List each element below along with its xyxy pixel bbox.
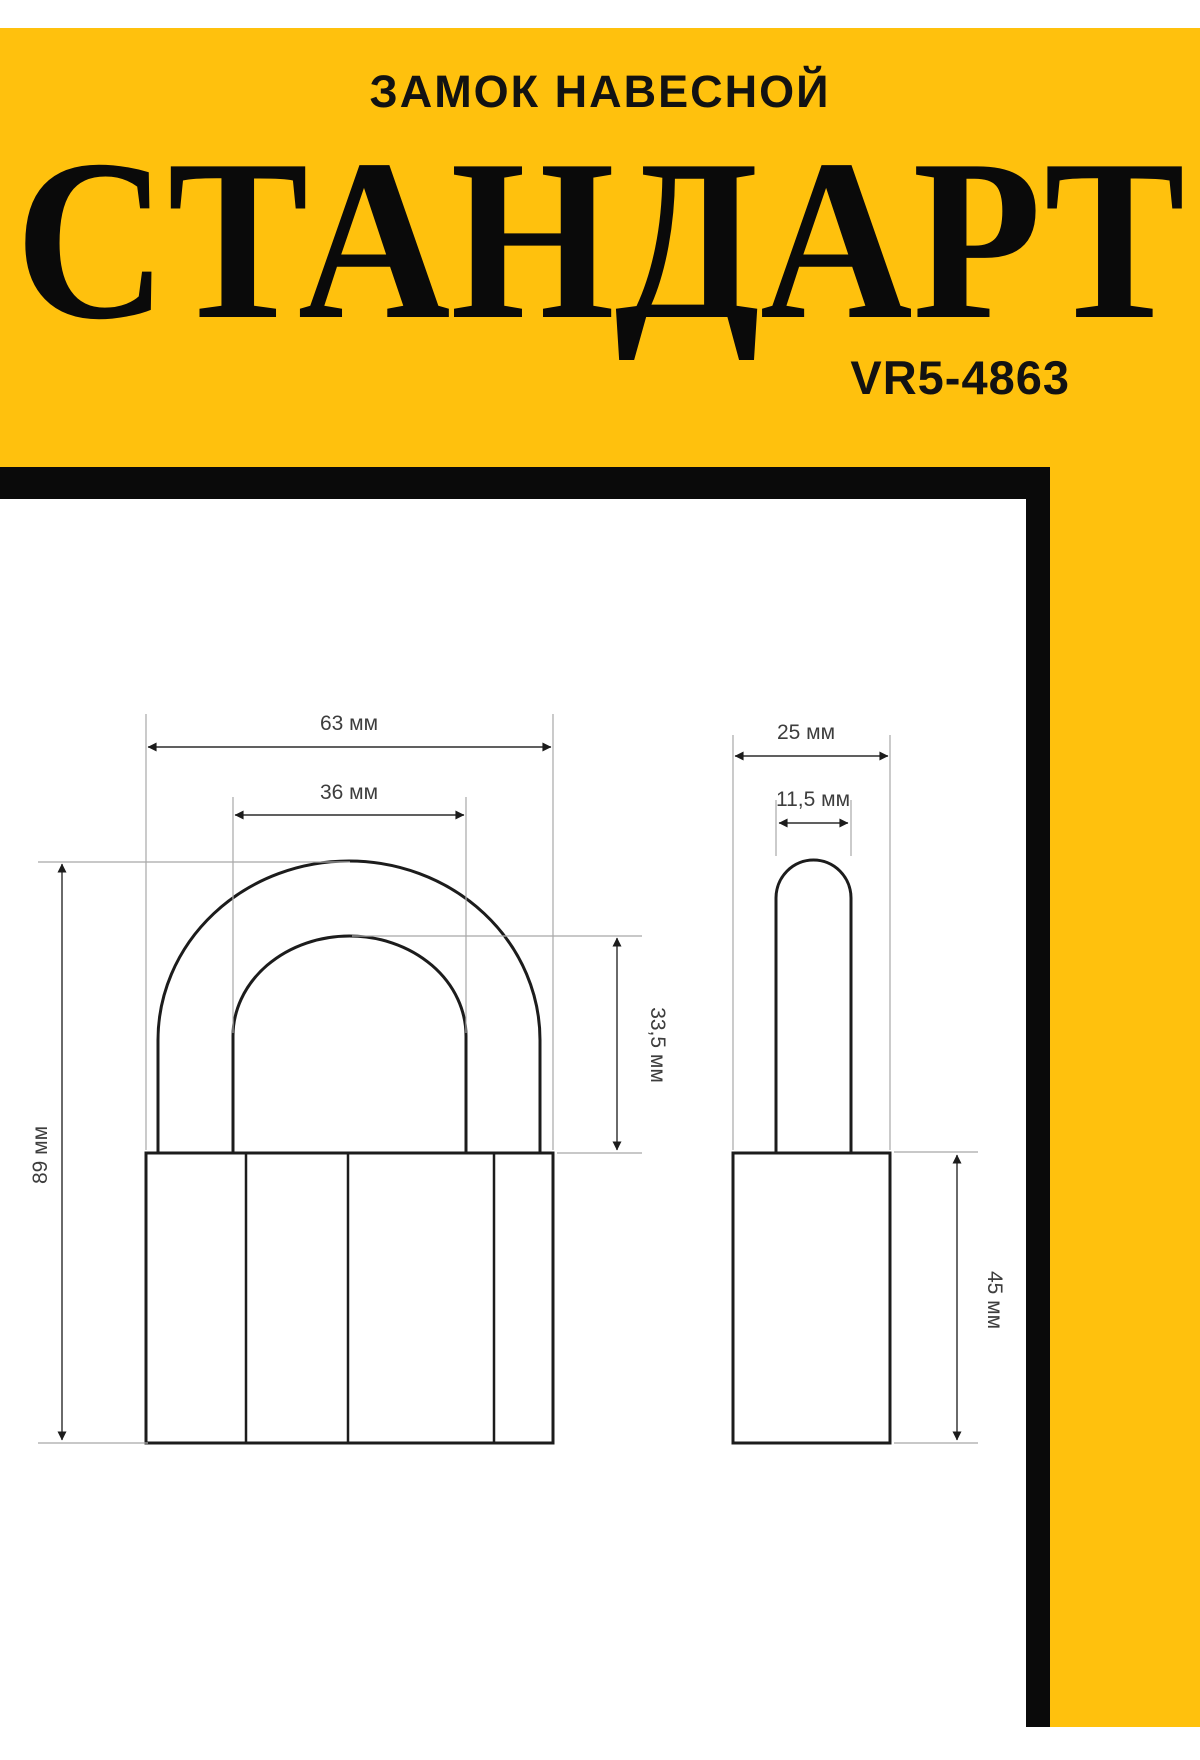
dim-label-front-opening-height: 33,5 мм <box>646 1007 669 1083</box>
side-body <box>733 1153 890 1443</box>
dimension-lines <box>62 747 957 1440</box>
dim-label-side-body-depth: 25 мм <box>777 721 835 744</box>
dim-label-front-overall-height: 89 мм <box>29 1126 52 1184</box>
dim-label-side-body-height: 45 мм <box>983 1271 1006 1329</box>
padlock-side-view <box>733 860 890 1443</box>
technical-drawing: 63 мм 36 мм 89 мм 33,5 мм 25 мм 11,5 мм … <box>0 0 1200 1760</box>
padlock-front-view <box>146 861 553 1443</box>
front-body <box>146 1153 553 1443</box>
front-shackle-inner <box>233 936 466 1153</box>
dim-label-front-inner-width: 36 мм <box>320 781 378 804</box>
dim-label-side-shackle-thickness: 11,5 мм <box>776 788 850 811</box>
dimension-labels: 63 мм 36 мм 89 мм 33,5 мм 25 мм 11,5 мм … <box>29 712 1006 1329</box>
side-shackle <box>776 860 851 1153</box>
dim-label-front-overall-width: 63 мм <box>320 712 378 735</box>
front-shackle-outer <box>158 861 540 1153</box>
product-sheet: ЗАМОК НАВЕСНОЙ СТАНДАРТ VR5-4863 <box>0 0 1200 1760</box>
